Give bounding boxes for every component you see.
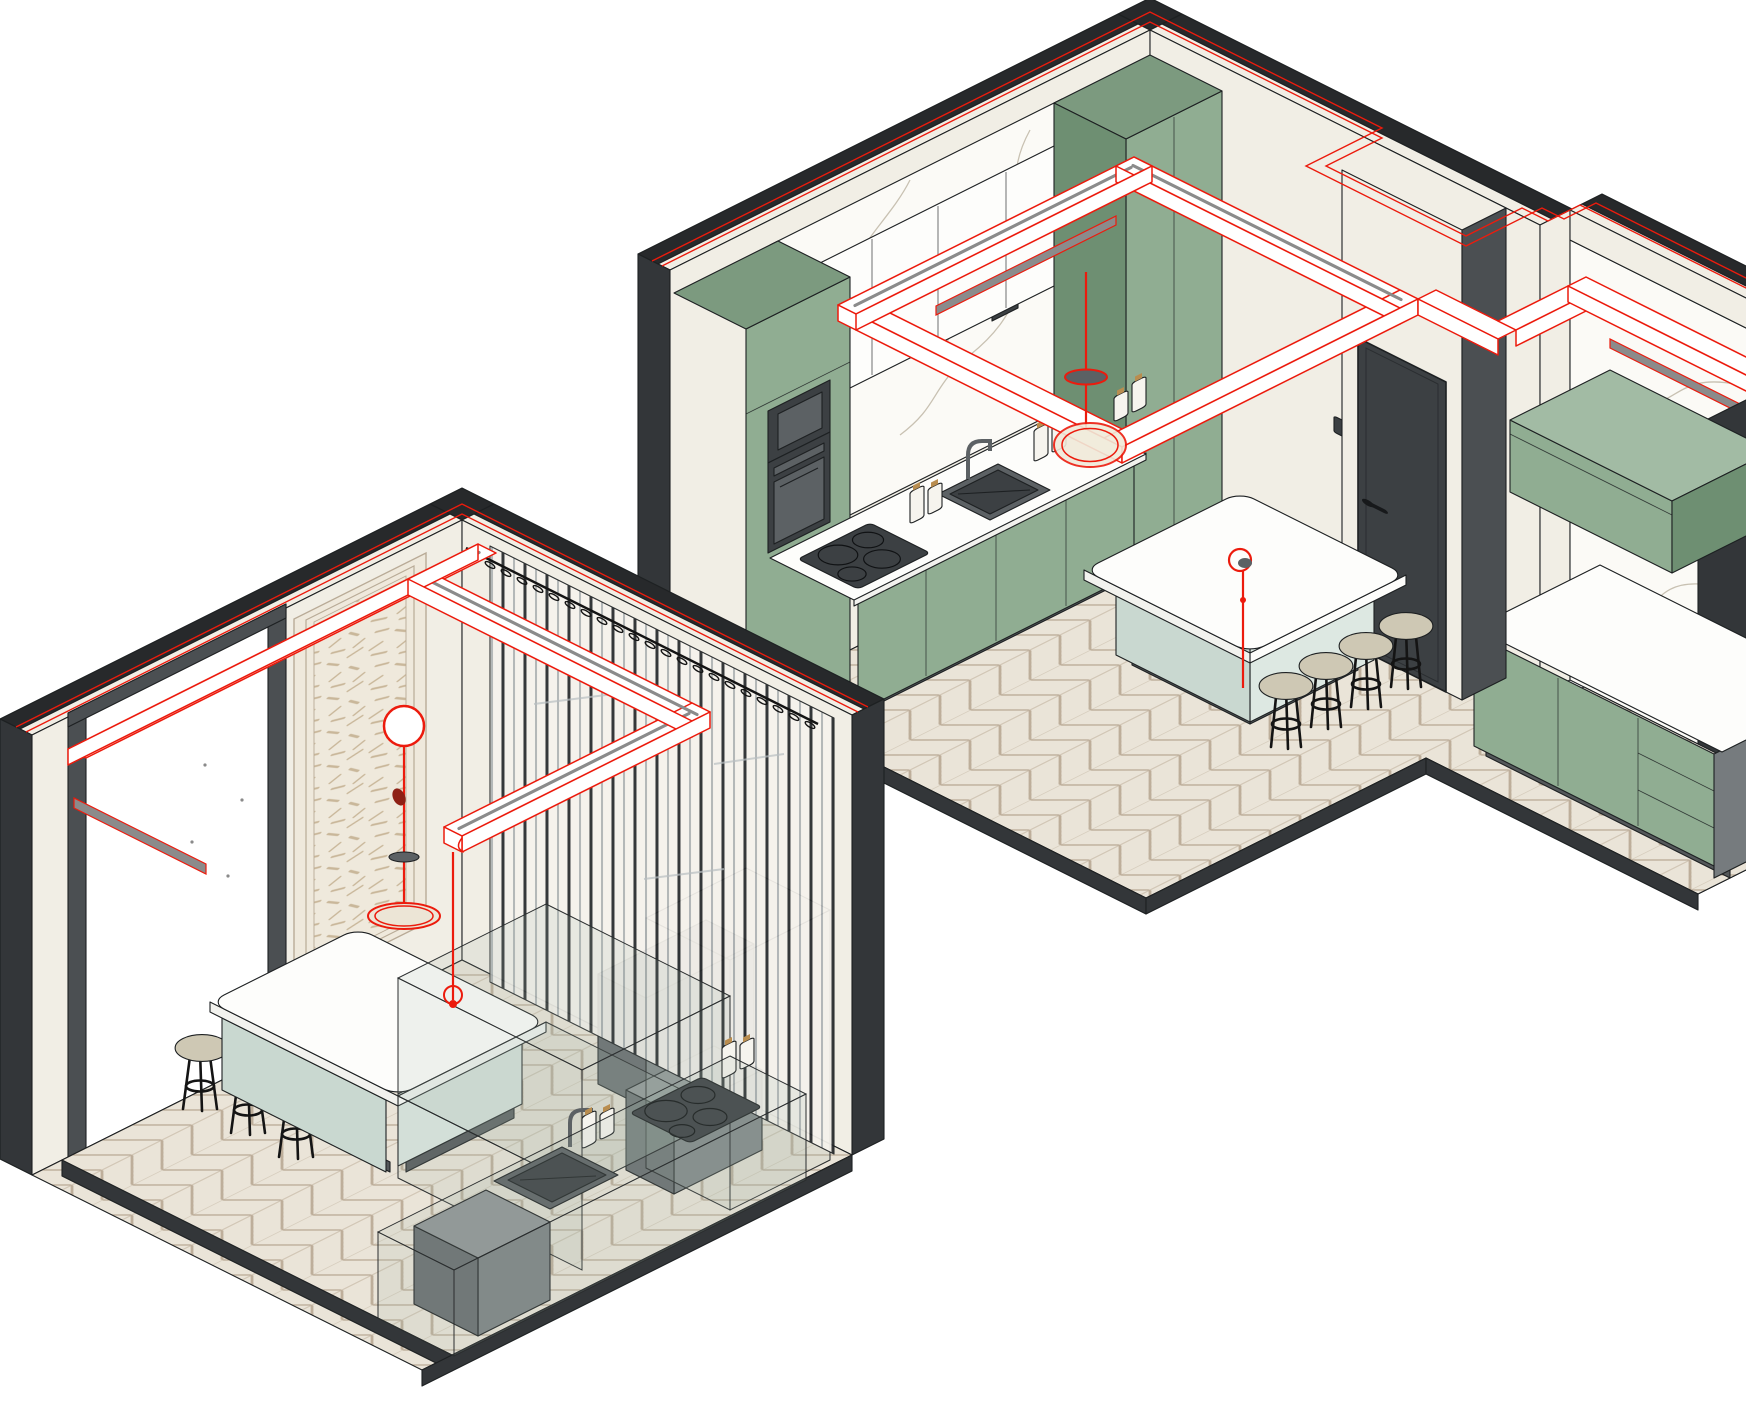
right-wall-end-cap bbox=[852, 699, 884, 1155]
screenshot-root bbox=[0, 0, 1746, 1426]
isometric-kitchen-scene bbox=[0, 0, 1746, 1426]
left-wall-end-cap bbox=[0, 719, 32, 1175]
door-volume-side bbox=[1462, 208, 1506, 700]
